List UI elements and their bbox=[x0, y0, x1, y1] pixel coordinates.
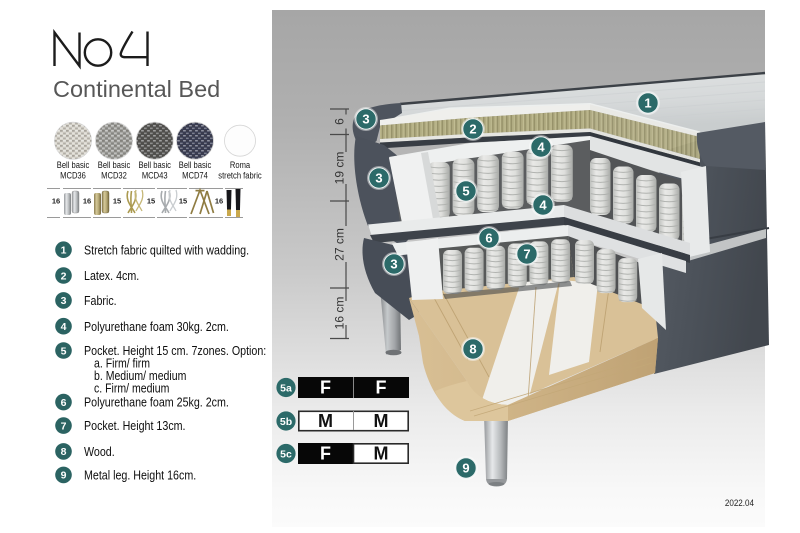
svg-text:7: 7 bbox=[523, 247, 530, 262]
svg-text:F: F bbox=[320, 444, 331, 464]
svg-text:9: 9 bbox=[61, 470, 67, 482]
svg-text:15: 15 bbox=[113, 197, 121, 206]
svg-text:7: 7 bbox=[61, 420, 67, 432]
svg-text:c. Firm/ medium: c. Firm/ medium bbox=[94, 380, 170, 395]
svg-text:16: 16 bbox=[83, 197, 91, 206]
svg-text:3: 3 bbox=[61, 295, 67, 307]
svg-text:Bell basic: Bell basic bbox=[138, 159, 171, 170]
svg-text:6: 6 bbox=[61, 397, 67, 409]
svg-text:6: 6 bbox=[332, 118, 346, 125]
svg-text:MCD43: MCD43 bbox=[142, 170, 168, 181]
svg-text:Bell basic: Bell basic bbox=[98, 159, 131, 170]
svg-text:16 cm: 16 cm bbox=[332, 297, 346, 330]
svg-text:Polyurethane foam 30kg. 2cm.: Polyurethane foam 30kg. 2cm. bbox=[84, 319, 229, 334]
svg-text:2: 2 bbox=[61, 270, 67, 282]
svg-text:4: 4 bbox=[537, 140, 545, 155]
svg-text:5b: 5b bbox=[280, 416, 292, 428]
svg-text:MCD36: MCD36 bbox=[60, 170, 86, 181]
svg-text:Wood.: Wood. bbox=[84, 444, 115, 459]
svg-text:M: M bbox=[318, 411, 333, 431]
svg-text:2: 2 bbox=[469, 122, 476, 137]
svg-text:15: 15 bbox=[179, 197, 187, 206]
svg-text:3: 3 bbox=[375, 171, 382, 186]
svg-text:6: 6 bbox=[485, 231, 492, 246]
svg-text:2022.04: 2022.04 bbox=[725, 497, 754, 508]
svg-text:Continental Bed: Continental Bed bbox=[53, 76, 220, 102]
svg-text:8: 8 bbox=[469, 342, 476, 357]
svg-text:5: 5 bbox=[61, 345, 67, 357]
svg-text:Latex. 4cm.: Latex. 4cm. bbox=[84, 268, 139, 283]
svg-text:M: M bbox=[374, 444, 389, 464]
svg-text:8: 8 bbox=[61, 446, 67, 458]
svg-text:M: M bbox=[374, 411, 389, 431]
svg-text:1: 1 bbox=[644, 96, 651, 111]
svg-text:27 cm: 27 cm bbox=[332, 228, 346, 261]
svg-text:4: 4 bbox=[61, 321, 67, 333]
svg-text:Fabric.: Fabric. bbox=[84, 293, 117, 308]
svg-text:F: F bbox=[320, 378, 331, 398]
svg-text:3: 3 bbox=[390, 257, 397, 272]
svg-text:Roma: Roma bbox=[230, 159, 250, 170]
svg-text:5: 5 bbox=[462, 184, 469, 199]
svg-text:9: 9 bbox=[462, 461, 469, 476]
svg-text:MCD74: MCD74 bbox=[182, 170, 208, 181]
svg-text:3: 3 bbox=[362, 112, 369, 127]
svg-text:4: 4 bbox=[539, 198, 547, 213]
svg-text:Bell basic: Bell basic bbox=[179, 159, 212, 170]
svg-text:Pocket. Height 13cm.: Pocket. Height 13cm. bbox=[84, 418, 186, 433]
svg-text:stretch fabric: stretch fabric bbox=[218, 170, 262, 181]
svg-text:Stretch fabric quilted with wa: Stretch fabric quilted with wadding. bbox=[84, 242, 249, 257]
svg-text:F: F bbox=[376, 378, 387, 398]
svg-text:16: 16 bbox=[52, 197, 60, 206]
svg-text:Polyurethane foam 25kg. 2cm.: Polyurethane foam 25kg. 2cm. bbox=[84, 395, 229, 410]
svg-text:5c: 5c bbox=[280, 448, 292, 460]
svg-text:19 cm: 19 cm bbox=[332, 152, 346, 185]
svg-text:MCD32: MCD32 bbox=[101, 170, 127, 181]
svg-text:Bell basic: Bell basic bbox=[57, 159, 90, 170]
svg-text:16: 16 bbox=[215, 197, 223, 206]
svg-text:15: 15 bbox=[147, 197, 155, 206]
svg-text:5a: 5a bbox=[280, 382, 292, 394]
svg-text:1: 1 bbox=[61, 245, 67, 257]
svg-text:Metal leg. Height 16cm.: Metal leg. Height 16cm. bbox=[84, 467, 196, 482]
